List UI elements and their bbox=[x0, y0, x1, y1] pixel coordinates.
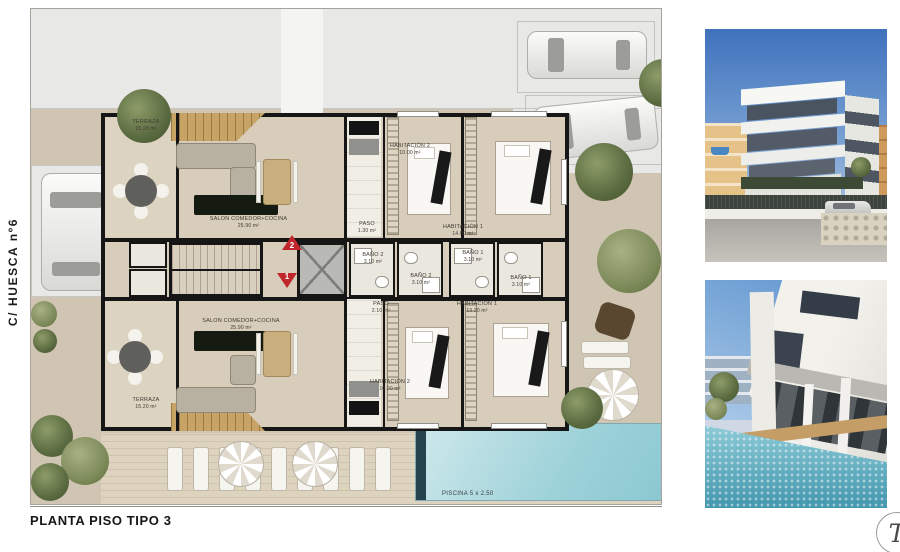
room-area: 3.10 m² bbox=[449, 257, 497, 264]
room-label-bano2-bottom: BAÑO 2 3.10 m² bbox=[397, 273, 445, 287]
dining-table bbox=[263, 331, 291, 377]
bed bbox=[495, 141, 551, 215]
bush bbox=[561, 387, 603, 429]
room-label-bano1-top: BAÑO 1 3.10 m² bbox=[449, 250, 497, 264]
toilet bbox=[475, 276, 489, 288]
sun-lounger bbox=[271, 447, 287, 491]
sofa bbox=[176, 387, 256, 413]
room-label-bano2-top: BAÑO 2 3.10 m² bbox=[349, 252, 397, 266]
car-window bbox=[833, 203, 855, 209]
room-name: PASO bbox=[347, 221, 387, 228]
palm-tree bbox=[597, 229, 661, 293]
sun-lounger bbox=[375, 447, 391, 491]
room-name: BAÑO 1 bbox=[497, 275, 545, 282]
car-rear-window bbox=[624, 107, 641, 140]
marker-number: 2 bbox=[290, 242, 294, 250]
room-label-hab2-top: HABITACIÓN 2 10.00 m² bbox=[374, 143, 446, 157]
bathroom-2-bottom bbox=[397, 242, 443, 297]
room-name: HABITACIÓN 2 bbox=[374, 143, 446, 150]
room-area: 15.20 m² bbox=[115, 404, 177, 411]
window bbox=[491, 111, 547, 117]
car-rear-window bbox=[616, 40, 630, 70]
car bbox=[41, 173, 109, 291]
dining-table bbox=[263, 159, 291, 205]
wardrobe bbox=[465, 303, 477, 421]
car-rear-window bbox=[52, 262, 100, 276]
room-area: 3.10 m² bbox=[349, 259, 397, 266]
room-label-terraza-bottom: TERRAZA 15.20 m² bbox=[115, 397, 177, 411]
room-label-salon-bottom: SALON COMEDOR+COCINA 25.90 m² bbox=[181, 318, 301, 332]
parasol bbox=[218, 441, 264, 487]
room-label-hab1-bottom: HABITACIÓN 1 13.20 m² bbox=[444, 301, 510, 315]
sun-lounger bbox=[583, 356, 631, 369]
dining-chairs bbox=[256, 161, 261, 203]
room-name: BAÑO 2 bbox=[349, 252, 397, 259]
room-name: BAÑO 1 bbox=[449, 250, 497, 257]
palm-tree bbox=[575, 143, 633, 201]
corner-pillar bbox=[750, 292, 777, 442]
room-name: PASO bbox=[361, 301, 401, 308]
room-label-hab2-bottom: HABITACIÓN 2 10.00 m² bbox=[354, 379, 426, 393]
window bbox=[397, 423, 439, 429]
pool-label: PISCINA 5 x 2.50 bbox=[442, 491, 494, 497]
bush bbox=[33, 329, 57, 353]
bathroom-2-top bbox=[349, 242, 395, 297]
kitchen-counter bbox=[349, 401, 379, 415]
room-area: 3.10 m² bbox=[497, 282, 545, 289]
photo-building-exterior bbox=[705, 29, 887, 262]
utility-room bbox=[129, 269, 167, 297]
room-label-hab1-top: HABITACIÓN 1 14.00 m² bbox=[431, 224, 495, 238]
window bbox=[397, 111, 439, 117]
elevator bbox=[297, 242, 347, 297]
room-label-salon-top: SALON COMEDOR+COCINA 25.90 m² bbox=[181, 216, 316, 230]
window bbox=[491, 423, 547, 429]
room-area: 1.30 m² bbox=[347, 228, 387, 235]
awning bbox=[711, 147, 729, 155]
room-area: 25.90 m² bbox=[181, 223, 316, 230]
window bbox=[561, 321, 567, 367]
room-name: TERRAZA bbox=[115, 397, 177, 404]
toilet bbox=[375, 276, 389, 288]
bush bbox=[31, 301, 57, 327]
kitchen-units-top bbox=[347, 117, 381, 237]
car bbox=[527, 31, 647, 79]
wardrobe bbox=[387, 117, 399, 235]
room-name: BAÑO 2 bbox=[397, 273, 445, 280]
window bbox=[561, 159, 567, 205]
room-area: 15.20 m² bbox=[115, 126, 177, 133]
sun-lounger bbox=[193, 447, 209, 491]
swimming-pool: PISCINA 5 x 2.50 bbox=[415, 423, 662, 501]
kitchen-counter bbox=[349, 121, 379, 135]
marker-number: 1 bbox=[285, 273, 289, 281]
logo-letter: T bbox=[889, 519, 900, 548]
car-windshield bbox=[548, 38, 564, 72]
room-area: 25.90 m² bbox=[181, 325, 301, 332]
toilet bbox=[504, 252, 518, 264]
wall bbox=[461, 301, 464, 431]
utility-room bbox=[129, 242, 167, 268]
room-area: 2.10 m² bbox=[361, 308, 401, 315]
room-name: HABITACIÓN 2 bbox=[354, 379, 426, 386]
sofa bbox=[176, 143, 256, 169]
terrace-table bbox=[119, 341, 151, 373]
sun-lounger bbox=[581, 341, 629, 354]
car-windshield bbox=[50, 192, 102, 208]
room-area: 10.00 m² bbox=[374, 150, 446, 157]
floor-plan: PISCINA 5 x 2.50 bbox=[30, 8, 662, 505]
sofa bbox=[230, 355, 256, 385]
wall bbox=[383, 301, 385, 431]
wall bbox=[461, 113, 464, 239]
palm-tree bbox=[851, 157, 871, 177]
decorative-wall bbox=[821, 213, 887, 245]
room-label-paso-top: PASO 1.30 m² bbox=[347, 221, 387, 235]
hedge bbox=[741, 177, 863, 189]
sun-lounger bbox=[167, 447, 183, 491]
street-label: C/ HUESCA nº6 bbox=[6, 218, 20, 326]
room-area: 3.10 m² bbox=[397, 280, 445, 287]
room-area: 10.00 m² bbox=[354, 386, 426, 393]
wardrobe bbox=[387, 303, 399, 421]
toilet bbox=[404, 252, 418, 264]
parasol bbox=[292, 441, 338, 487]
tree bbox=[117, 89, 171, 143]
wardrobe bbox=[465, 117, 477, 235]
footer-divider bbox=[30, 506, 662, 507]
room-name: SALON COMEDOR+COCINA bbox=[181, 216, 316, 223]
photo-pool bbox=[705, 280, 887, 508]
bathroom-1-bottom bbox=[497, 242, 543, 297]
room-label-bano1-bottom: BAÑO 1 3.10 m² bbox=[497, 275, 545, 289]
room-label-terraza-top: TERRAZA 15.20 m² bbox=[115, 119, 177, 133]
room-area: 14.00 m² bbox=[431, 231, 495, 238]
bush bbox=[31, 463, 69, 501]
room-name: TERRAZA bbox=[115, 119, 177, 126]
room-name: HABITACIÓN 1 bbox=[444, 301, 510, 308]
terrace-table bbox=[125, 175, 157, 207]
room-name: SALON COMEDOR+COCINA bbox=[181, 318, 301, 325]
room-label-paso-bottom: PASO 2.10 m² bbox=[361, 301, 401, 315]
page-title: PLANTA PISO TIPO 3 bbox=[30, 513, 172, 528]
sun-lounger bbox=[349, 447, 365, 491]
palm-tree bbox=[705, 398, 727, 420]
room-name: HABITACIÓN 1 bbox=[431, 224, 495, 231]
dining-chairs bbox=[293, 161, 298, 203]
dining-chairs bbox=[293, 333, 298, 375]
driveway bbox=[281, 9, 323, 113]
bed bbox=[493, 323, 549, 397]
logo-mark: T bbox=[876, 512, 900, 552]
beanbag-chair bbox=[593, 300, 637, 342]
room-area: 13.20 m² bbox=[444, 308, 510, 315]
stairwell bbox=[169, 242, 263, 297]
dining-chairs bbox=[256, 333, 261, 375]
